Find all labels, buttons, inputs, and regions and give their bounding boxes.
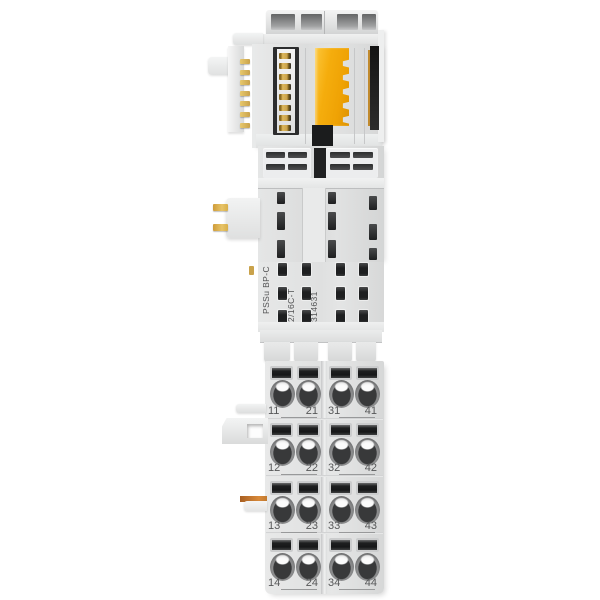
cap-vent-slot <box>362 14 376 30</box>
side-pin <box>240 101 250 106</box>
bus-contact-pin <box>279 115 291 121</box>
bus-contact-pin <box>279 105 291 111</box>
cap-vent-slot <box>271 14 295 30</box>
terminal-slot <box>329 538 352 552</box>
bus-contact-pin <box>279 125 291 131</box>
cap-vent-slot <box>337 14 358 30</box>
label-contact <box>336 263 345 276</box>
photo-canvas: PSSu BP-C 2/16C-T 314631 112131411222324… <box>0 0 600 600</box>
terminal-underline <box>281 589 317 590</box>
label-contact <box>336 287 345 300</box>
vent-slot <box>330 164 350 170</box>
terminal-slot <box>270 366 293 380</box>
vent-slot <box>266 152 285 158</box>
terminal-hole <box>329 380 354 408</box>
terminal-number: 44 <box>350 577 377 589</box>
mid-slot <box>277 240 285 258</box>
terminal-underline <box>281 474 317 475</box>
mid-slot <box>328 192 336 204</box>
mid-slot <box>369 196 377 210</box>
terminal-number: 21 <box>291 405 318 417</box>
terminal-slot <box>356 538 379 552</box>
label-contact <box>359 287 368 300</box>
terminal-number: 22 <box>291 462 318 474</box>
label-text-order: 314631 <box>310 288 323 322</box>
pcb-edge-gold-line <box>368 50 370 126</box>
terminal-slot <box>297 423 320 437</box>
terminal-slot <box>329 423 352 437</box>
side-pin <box>240 91 250 96</box>
center-gap <box>314 148 326 180</box>
bus-contact-pin <box>279 53 291 59</box>
mid-slot <box>369 224 377 240</box>
left-tab <box>208 57 230 75</box>
terminal-number: 43 <box>350 520 377 532</box>
terminal-slot <box>297 366 320 380</box>
label-text-type: 2/16C-T <box>287 284 300 322</box>
label-contact <box>302 263 311 276</box>
mount-tab <box>294 342 318 362</box>
cap-vent-slot <box>301 14 322 30</box>
side-pin <box>240 80 250 85</box>
side-pin <box>240 70 250 75</box>
bus-contact-pin <box>279 84 291 90</box>
hook-notch <box>247 424 263 438</box>
bus-contact-pin <box>279 74 291 80</box>
mount-tab <box>264 342 290 362</box>
terminal-number: 41 <box>350 405 377 417</box>
label-text-product: PSSu BP-C <box>262 268 275 314</box>
head-seam <box>305 48 306 144</box>
head-seam <box>364 48 365 144</box>
label-contact <box>278 263 287 276</box>
terminal-number: 23 <box>291 520 318 532</box>
label-contact <box>359 263 368 276</box>
vent-slot <box>288 152 307 158</box>
terminal-underline <box>339 532 375 533</box>
terminal-underline <box>339 589 375 590</box>
vent-slot <box>266 164 285 170</box>
mid-pin <box>213 224 228 231</box>
cap-split-seam <box>324 11 325 35</box>
coding-key-yellow <box>315 48 349 126</box>
mount-tab <box>328 342 352 362</box>
head-seam <box>354 48 355 144</box>
side-pin <box>240 112 250 117</box>
mid-slot <box>277 192 285 204</box>
terminal-slot <box>270 423 293 437</box>
vent-slot <box>288 164 307 170</box>
terminal-number: 24 <box>291 577 318 589</box>
vent-slot <box>353 164 373 170</box>
mount-tab <box>356 342 376 362</box>
bus-contact-pin <box>279 63 291 69</box>
terminal-underline <box>281 417 317 418</box>
mid-slot <box>328 240 336 258</box>
mid-slot <box>369 248 377 260</box>
release-tab <box>236 404 266 413</box>
terminal-slot <box>356 366 379 380</box>
terminal-underline <box>339 474 375 475</box>
pcb-edge-strip <box>370 46 379 130</box>
mid-left-block <box>226 198 260 238</box>
mid-slot <box>328 212 336 230</box>
row-seam <box>266 475 383 477</box>
terminal-number: 42 <box>350 462 377 474</box>
terminal-slot <box>297 481 320 495</box>
terminal-slot <box>356 423 379 437</box>
mid-pin <box>213 204 228 211</box>
terminal-underline <box>281 532 317 533</box>
row-seam <box>266 418 383 420</box>
terminal-hole <box>270 380 295 408</box>
terminal-slot <box>329 481 352 495</box>
terminal-underline <box>339 417 375 418</box>
side-pin <box>240 123 250 128</box>
mid-slot <box>277 212 285 230</box>
vent-slot <box>330 152 350 158</box>
terminal-hole <box>355 380 380 408</box>
vent-slot <box>353 152 373 158</box>
bus-contact-pin <box>279 94 291 100</box>
terminal-slot <box>270 538 293 552</box>
terminal-slot <box>297 538 320 552</box>
terminal-slot <box>270 481 293 495</box>
side-pin <box>240 59 250 64</box>
terminal-slot <box>356 481 379 495</box>
mid-channel <box>302 188 326 262</box>
terminal-slot <box>329 366 352 380</box>
terminal-divider <box>321 361 327 594</box>
terminal-hole <box>296 380 321 408</box>
gold-contact-dot <box>249 266 254 275</box>
coding-wedge-body <box>244 501 267 511</box>
